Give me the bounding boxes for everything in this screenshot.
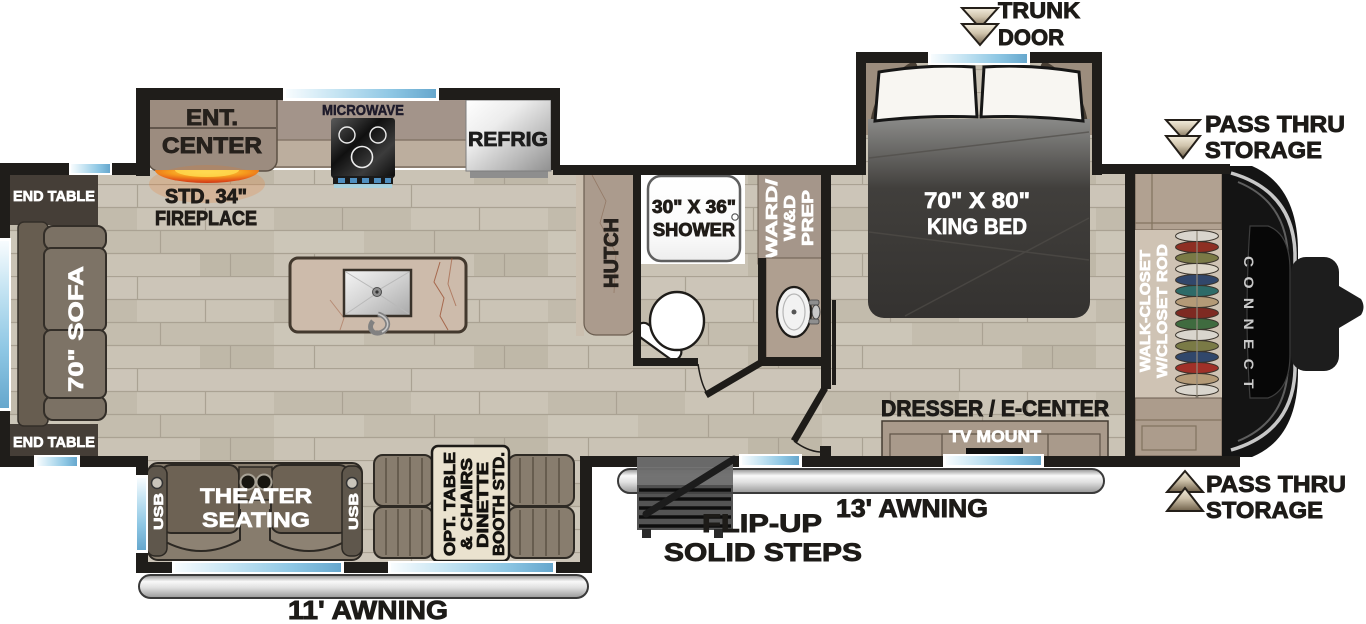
svg-text:PASS THRU: PASS THRU — [1205, 111, 1345, 137]
svg-text:TV MOUNT: TV MOUNT — [949, 427, 1042, 446]
svg-text:11' AWNING: 11' AWNING — [288, 595, 448, 624]
svg-text:FIREPLACE: FIREPLACE — [155, 208, 257, 230]
svg-text:WARD/: WARD/ — [764, 178, 781, 259]
svg-text:SHOWER: SHOWER — [653, 220, 735, 240]
svg-text:STORAGE: STORAGE — [1206, 497, 1323, 523]
svg-text:USB: USB — [151, 493, 166, 530]
svg-text:W/CLOSET ROD: W/CLOSET ROD — [1155, 244, 1171, 378]
svg-text:30" X 36": 30" X 36" — [652, 197, 736, 217]
svg-text:MICROWAVE: MICROWAVE — [322, 103, 404, 119]
svg-text:SOLID STEPS: SOLID STEPS — [664, 539, 862, 567]
svg-text:13' AWNING: 13' AWNING — [836, 495, 988, 523]
svg-text:70" X 80": 70" X 80" — [924, 188, 1030, 213]
svg-text:SEATING: SEATING — [202, 509, 310, 532]
svg-text:PREP: PREP — [800, 190, 817, 246]
svg-text:THEATER: THEATER — [200, 485, 312, 508]
svg-text:FLIP-UP: FLIP-UP — [702, 510, 822, 538]
svg-text:BOOTH STD.: BOOTH STD. — [491, 452, 508, 556]
svg-text:DRESSER / E-CENTER: DRESSER / E-CENTER — [881, 396, 1109, 421]
svg-text:CONNECT: CONNECT — [1241, 256, 1257, 398]
svg-text:END TABLE: END TABLE — [13, 188, 95, 205]
svg-text:REFRIG: REFRIG — [468, 129, 548, 151]
svg-text:OPT. TABLE: OPT. TABLE — [442, 452, 459, 556]
svg-text:USB: USB — [346, 493, 361, 530]
svg-text:KING BED: KING BED — [927, 214, 1027, 239]
svg-text:DOOR: DOOR — [998, 25, 1064, 50]
svg-text:DINETTE: DINETTE — [475, 462, 492, 548]
svg-text:ENT.: ENT. — [186, 105, 238, 130]
svg-text:END TABLE: END TABLE — [13, 434, 95, 451]
svg-text:STORAGE: STORAGE — [1205, 137, 1322, 163]
svg-text:STD. 34": STD. 34" — [165, 186, 247, 208]
svg-text:HUTCH: HUTCH — [601, 218, 623, 288]
svg-text:W&D: W&D — [782, 195, 799, 241]
svg-text:CENTER: CENTER — [162, 133, 262, 158]
svg-text:TRUNK: TRUNK — [998, 0, 1080, 23]
svg-text:PASS THRU: PASS THRU — [1206, 471, 1346, 497]
svg-text:& CHAIRS: & CHAIRS — [459, 458, 476, 550]
svg-text:WALK-CLOSET: WALK-CLOSET — [1138, 250, 1154, 372]
svg-text:70" SOFA: 70" SOFA — [65, 266, 88, 392]
